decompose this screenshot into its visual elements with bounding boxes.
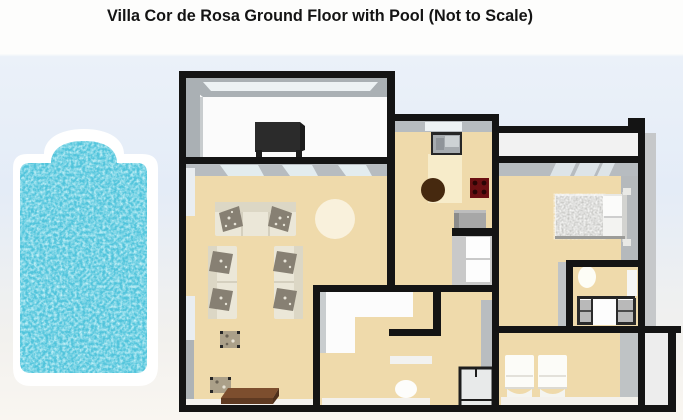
- svg-text:Villa Cor de Rosa Ground Floor: Villa Cor de Rosa Ground Floor with Pool…: [107, 7, 533, 25]
